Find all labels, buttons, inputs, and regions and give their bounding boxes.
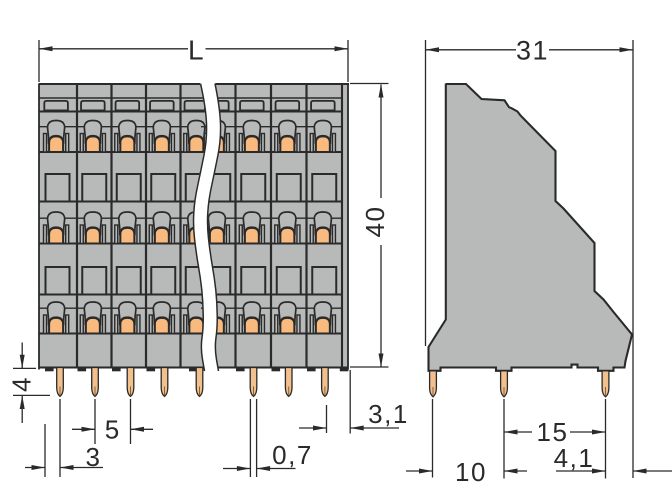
svg-text:0,7: 0,7 <box>272 440 313 470</box>
svg-text:10: 10 <box>455 457 487 487</box>
svg-text:40: 40 <box>360 206 390 238</box>
svg-text:4: 4 <box>6 376 36 392</box>
svg-text:5: 5 <box>105 415 121 445</box>
svg-text:31: 31 <box>516 35 549 65</box>
svg-text:3: 3 <box>86 442 102 472</box>
svg-text:L: L <box>188 35 205 66</box>
svg-text:3,1: 3,1 <box>368 399 409 429</box>
svg-text:4,1: 4,1 <box>554 443 595 473</box>
